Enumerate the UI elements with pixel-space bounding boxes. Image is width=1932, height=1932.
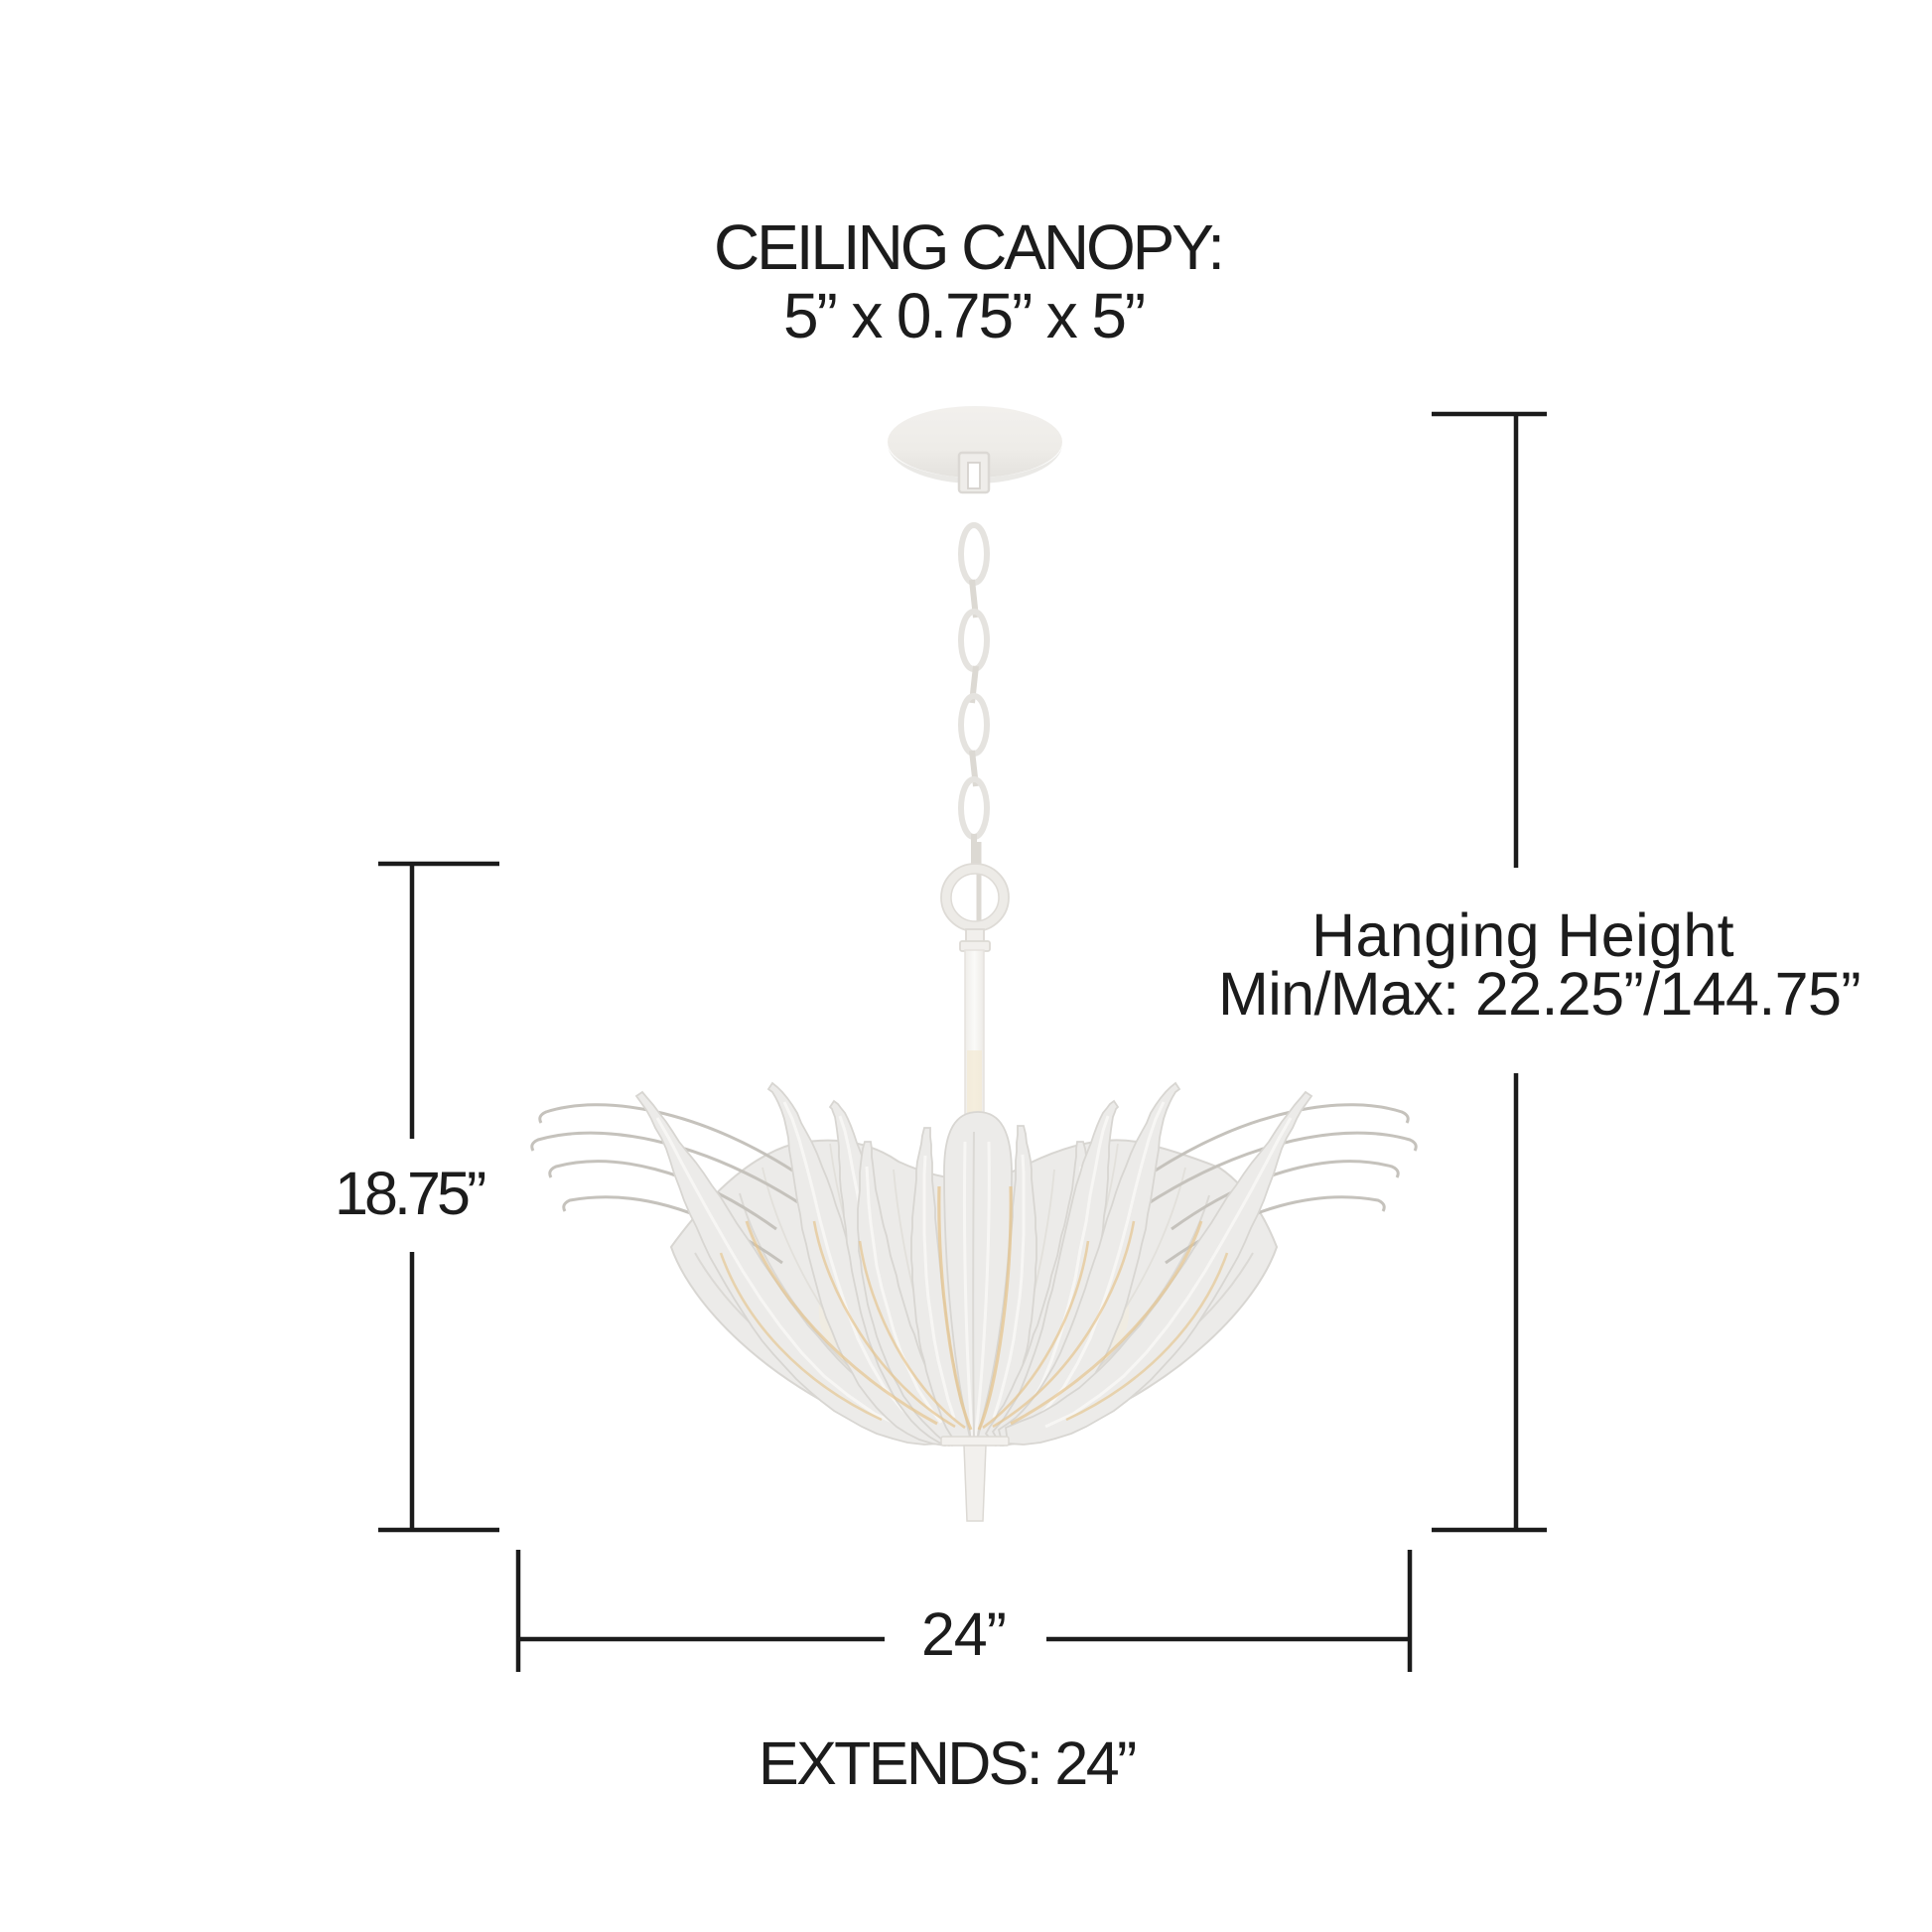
- svg-text:Hanging Height: Hanging Height: [1311, 901, 1734, 969]
- svg-text:Min/Max: 22.25”/144.75”: Min/Max: 22.25”/144.75”: [1218, 960, 1861, 1028]
- svg-text:24”: 24”: [921, 1600, 1006, 1668]
- svg-text:CEILING CANOPY:: CEILING CANOPY:: [714, 211, 1222, 283]
- svg-text:EXTENDS: 24”: EXTENDS: 24”: [759, 1729, 1136, 1797]
- svg-text:5” x 0.75” x 5”: 5” x 0.75” x 5”: [783, 280, 1144, 351]
- svg-text:18.75”: 18.75”: [335, 1160, 485, 1227]
